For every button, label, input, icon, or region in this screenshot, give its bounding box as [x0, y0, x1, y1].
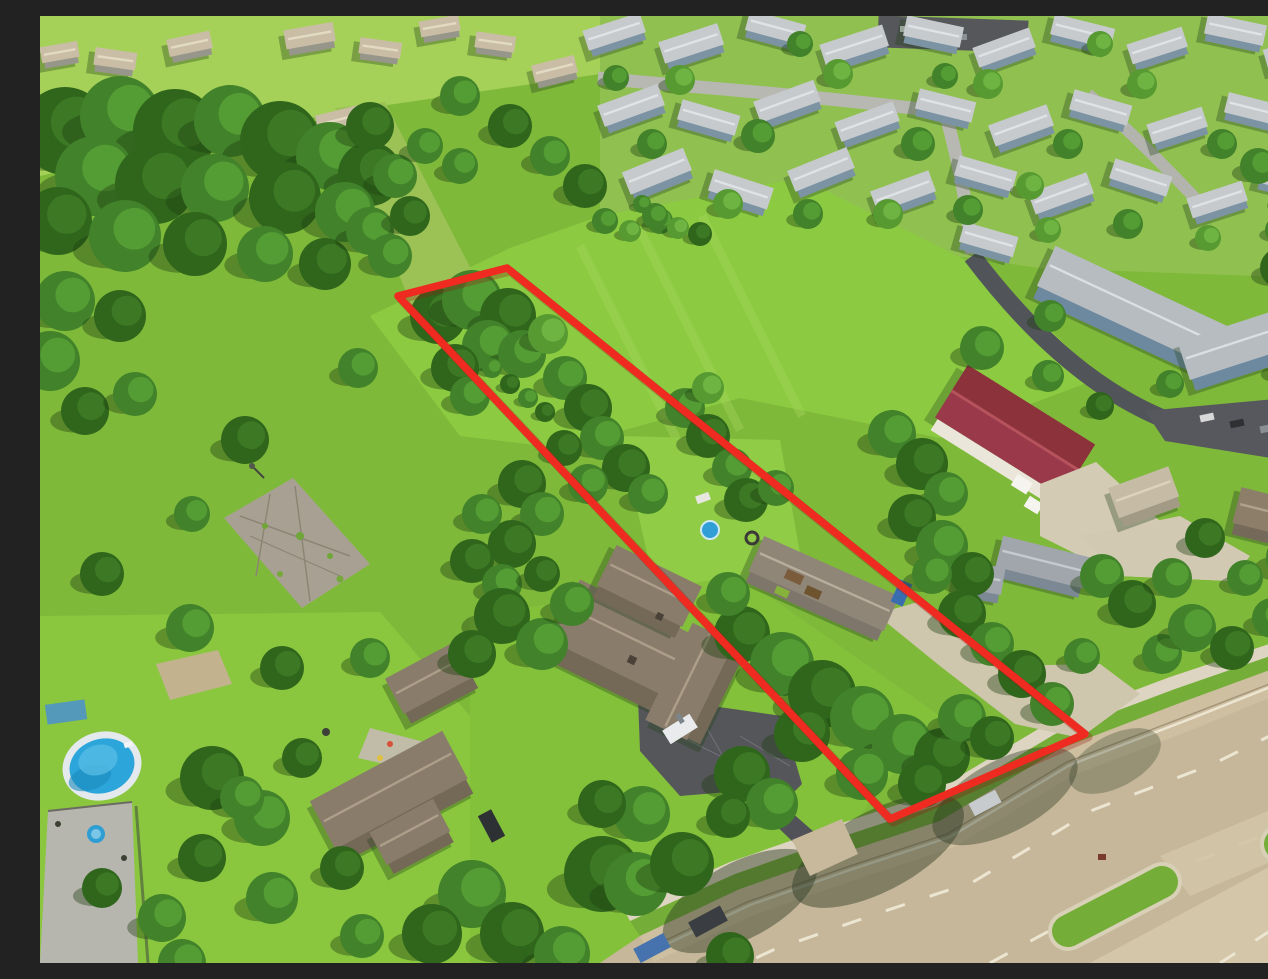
tree-canopy-highlight — [499, 294, 531, 326]
tree-canopy-highlight — [674, 219, 687, 232]
court-weed — [262, 523, 268, 529]
tree-canopy-highlight — [983, 72, 1000, 89]
tree-canopy-highlight — [696, 225, 710, 239]
tree-canopy-highlight — [1096, 395, 1112, 411]
tree-canopy-highlight — [489, 360, 501, 372]
tree-canopy-highlight — [914, 444, 944, 474]
tree-canopy-highlight — [542, 318, 565, 341]
tree-canopy-highlight — [47, 194, 86, 233]
tree-canopy-highlight — [1095, 559, 1121, 585]
tree-canopy-highlight — [939, 477, 965, 503]
tree-canopy-highlight — [536, 560, 557, 581]
tree-canopy-highlight — [383, 239, 409, 265]
tree-canopy-highlight — [565, 587, 591, 613]
tree-canopy-highlight — [672, 839, 709, 876]
tree-canopy-highlight — [884, 415, 912, 443]
tree-canopy-highlight — [578, 169, 604, 195]
tree-canopy-highlight — [1204, 228, 1219, 243]
tree-canopy-highlight — [544, 140, 567, 163]
tree-canopy-highlight — [914, 765, 942, 793]
tree-canopy-highlight — [723, 192, 740, 209]
tree-canopy-highlight — [580, 389, 608, 417]
tree-canopy-highlight — [639, 197, 649, 207]
tree-canopy-highlight — [355, 919, 381, 945]
tree-canopy-highlight — [733, 752, 765, 784]
tree-canopy-highlight — [1045, 304, 1064, 323]
court-weed — [296, 532, 304, 540]
tree-canopy-highlight — [1044, 220, 1059, 235]
tree-canopy-highlight — [558, 361, 584, 387]
tree-canopy-highlight — [1199, 522, 1222, 545]
tree-canopy-highlight — [941, 66, 956, 81]
tree-canopy-highlight — [803, 202, 820, 219]
tree-canopy-highlight — [534, 624, 564, 654]
tree-canopy-highlight — [96, 872, 119, 895]
tree-canopy-highlight — [185, 219, 222, 256]
patio-item-yellow — [377, 755, 383, 761]
tree-canopy-highlight — [1184, 609, 1212, 637]
tree-canopy-highlight — [1217, 132, 1234, 149]
tree-canopy-highlight — [721, 577, 747, 603]
tree-canopy-highlight — [1137, 72, 1154, 89]
tree-canopy-highlight — [965, 557, 991, 583]
tree-canopy-highlight — [476, 498, 499, 521]
tree-canopy-highlight — [601, 211, 616, 226]
tree-canopy-highlight — [404, 200, 427, 223]
tree-canopy-highlight — [182, 609, 210, 637]
tree-canopy-highlight — [204, 161, 243, 200]
tree-canopy-highlight — [594, 785, 622, 813]
court-weed — [327, 553, 333, 559]
tree-canopy-highlight — [542, 404, 554, 416]
tree-canopy-highlight — [1026, 175, 1042, 191]
tree-canopy-highlight — [113, 208, 155, 250]
tree-canopy-highlight — [362, 107, 390, 135]
tree-canopy-highlight — [503, 109, 529, 135]
tree-canopy-highlight — [454, 80, 477, 103]
tree-canopy-highlight — [1123, 212, 1140, 229]
tree-canopy-highlight — [703, 376, 722, 395]
tree-canopy-highlight — [335, 851, 361, 877]
tree-canopy-highlight — [764, 784, 794, 814]
fire-pit — [322, 728, 330, 736]
tree-canopy-highlight — [904, 499, 932, 527]
tree-canopy-highlight — [647, 132, 664, 149]
aerial-property-photo: Aerial drone photograph of a long narrow… — [40, 16, 1268, 963]
tree-canopy-highlight — [525, 390, 537, 402]
tree-canopy-highlight — [913, 131, 933, 151]
tree-canopy-highlight — [642, 478, 665, 501]
tree-canopy-highlight — [985, 721, 1011, 747]
tree-canopy-highlight — [1166, 562, 1189, 585]
tree-canopy-highlight — [256, 232, 288, 264]
tree-canopy-highlight — [275, 651, 301, 677]
tree-canopy-highlight — [128, 377, 154, 403]
aerial-photo-svg — [40, 16, 1268, 963]
planter — [121, 855, 127, 861]
tree-canopy-highlight — [112, 296, 142, 326]
tree-canopy-highlight — [1063, 132, 1080, 149]
tree-canopy-highlight — [1076, 642, 1097, 663]
tree-canopy-highlight — [1225, 631, 1251, 657]
tree-canopy-highlight — [1166, 373, 1182, 389]
tree-canopy-highlight — [985, 627, 1011, 653]
tree-canopy-highlight — [40, 338, 75, 373]
tree-canopy-highlight — [796, 34, 811, 49]
tree-canopy-highlight — [496, 568, 519, 591]
tree-canopy-highlight — [1239, 564, 1260, 585]
tree-canopy-highlight — [273, 170, 315, 212]
tree-canopy-highlight — [926, 558, 949, 581]
tree-canopy-highlight — [388, 159, 414, 185]
tree-canopy-highlight — [55, 278, 90, 313]
tree-canopy-highlight — [465, 544, 491, 570]
tree-canopy-highlight — [733, 612, 765, 644]
tree-canopy-highlight — [154, 899, 182, 927]
tree-canopy-highlight — [235, 781, 261, 807]
tree-canopy-highlight — [1043, 364, 1062, 383]
tree-canopy-highlight — [504, 525, 532, 553]
court-weed — [337, 576, 344, 583]
tree-canopy-highlight — [514, 465, 542, 493]
tree-canopy-highlight — [883, 202, 900, 219]
court-weed — [277, 571, 283, 577]
patio-item-red — [387, 741, 393, 747]
tree-canopy-highlight — [535, 497, 561, 523]
tree-canopy-highlight — [464, 635, 492, 663]
tree-canopy-highlight — [595, 421, 621, 447]
tree-canopy-highlight — [77, 392, 105, 420]
tree-canopy-highlight — [95, 557, 121, 583]
tree-canopy-highlight — [507, 376, 519, 388]
tree-canopy-highlight — [633, 792, 665, 824]
kiddie-pool-patio-center — [91, 829, 101, 839]
tree-canopy-highlight — [352, 352, 375, 375]
tree-canopy-highlight — [963, 198, 980, 215]
tree-canopy-highlight — [954, 595, 982, 623]
tree-canopy-highlight — [626, 222, 639, 235]
median-sign — [1098, 854, 1106, 860]
tree-canopy-highlight — [833, 62, 850, 79]
tree-canopy-highlight — [558, 434, 579, 455]
tree-canopy-highlight — [264, 878, 294, 908]
kiddie-pool-yard — [701, 521, 719, 539]
tree-canopy-highlight — [612, 68, 627, 83]
tree-canopy-highlight — [1096, 34, 1111, 49]
tree-canopy-highlight — [753, 123, 773, 143]
tree-canopy-highlight — [237, 421, 265, 449]
tree-canopy-highlight — [675, 68, 692, 85]
tree-canopy-highlight — [651, 206, 666, 221]
basketball-hoop — [249, 463, 255, 469]
tree-canopy-highlight — [493, 594, 525, 626]
tree-canopy-highlight — [502, 909, 539, 946]
tree-canopy-highlight — [934, 526, 964, 556]
tree-canopy-highlight — [618, 449, 646, 477]
tree-canopy-highlight — [296, 742, 319, 765]
tree-canopy-highlight — [721, 799, 747, 825]
tree-canopy-highlight — [461, 867, 500, 906]
tree-canopy-highlight — [364, 642, 387, 665]
tree-canopy-highlight — [419, 132, 440, 153]
planter — [55, 821, 61, 827]
tree-canopy-highlight — [975, 331, 1001, 357]
tree-canopy-highlight — [194, 839, 222, 867]
tree-canopy-highlight — [454, 152, 475, 173]
tree-canopy-highlight — [422, 911, 457, 946]
tree-canopy-highlight — [186, 500, 207, 521]
